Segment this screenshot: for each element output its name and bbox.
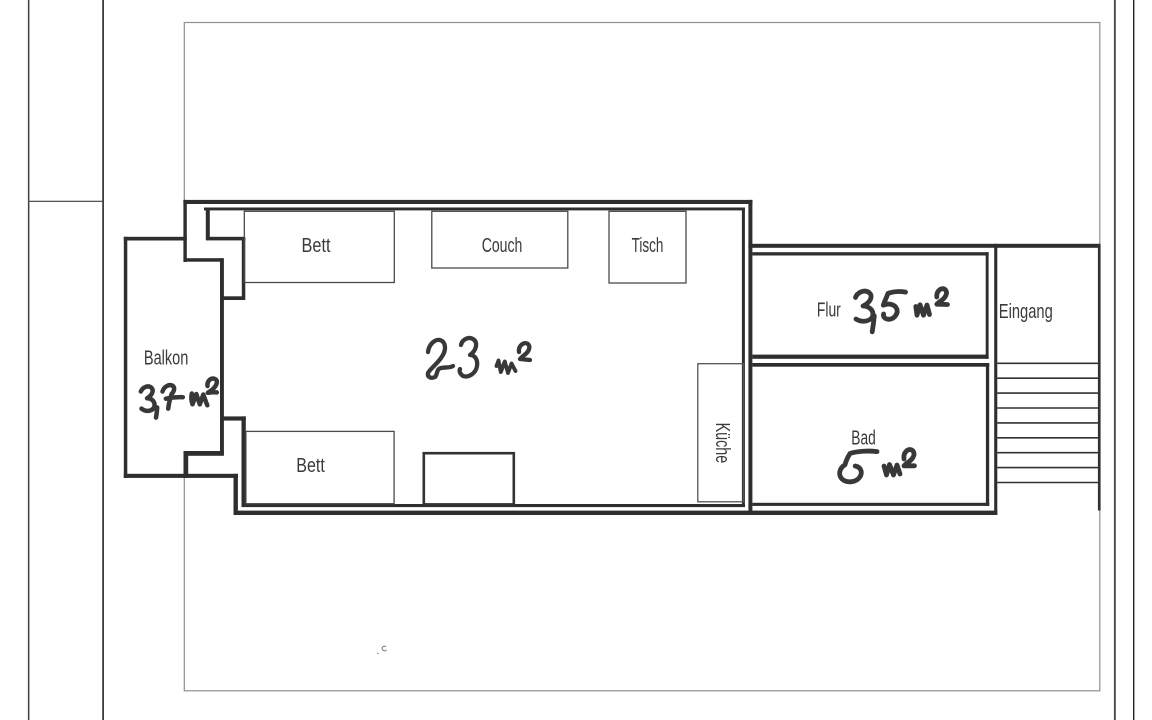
svg-text:Bett: Bett xyxy=(302,235,331,257)
svg-text:Küche: Küche xyxy=(711,423,733,464)
svg-text:Bett: Bett xyxy=(296,455,325,477)
svg-text:Balkon: Balkon xyxy=(144,348,188,370)
svg-text:Couch: Couch xyxy=(482,235,523,257)
svg-text:Flur: Flur xyxy=(817,300,841,322)
svg-text:Bad: Bad xyxy=(851,428,875,450)
svg-text:Eingang: Eingang xyxy=(999,301,1053,323)
svg-text:Tisch: Tisch xyxy=(632,235,664,257)
